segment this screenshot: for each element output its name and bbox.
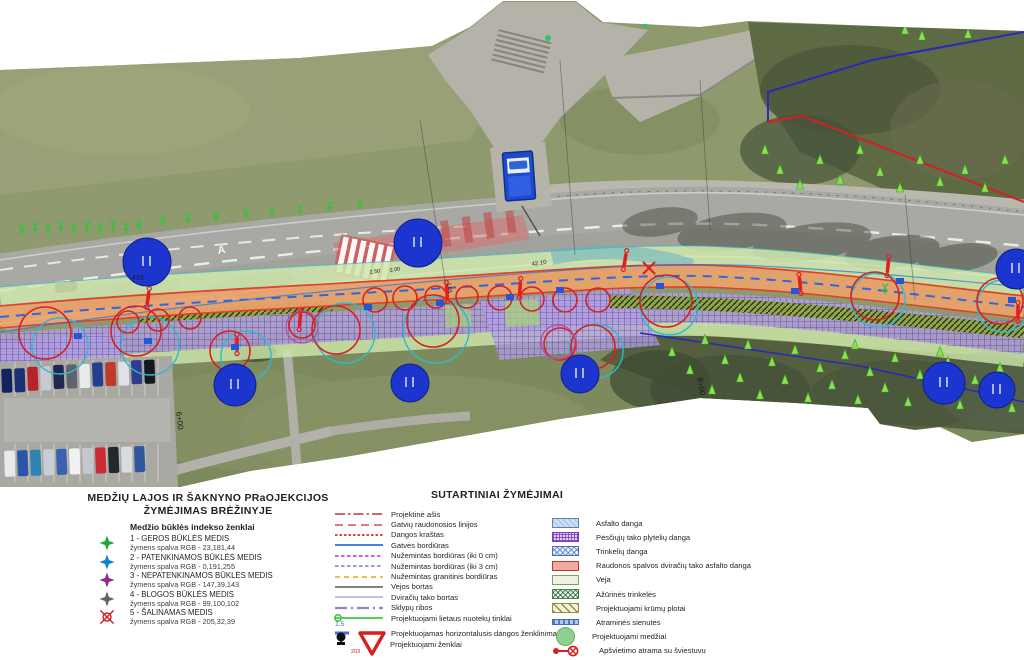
tree-legend-subtitle: Medžio būklės indekso ženklai [130,522,358,532]
line-style-sample [333,540,385,550]
surface-legend-label: Asfalto danga [596,519,642,528]
signs-legend-label: Projektuojami ženklai [390,640,462,649]
line-legend-label: Sklypų ribos [391,603,432,612]
surface-legend-label: Ažūrinės trinkelės [596,590,656,599]
line-legend-label: Nužemintas bordiūras (iki 0 cm) [391,551,498,560]
tree-condition-icon [98,554,116,570]
tree-condition-icon [98,535,116,551]
surface-legend-row: Asfalto danga [552,516,872,530]
line-style-sample [333,592,385,602]
symbols-legend-heading: SUTARTINIAI ŽYMĖJIMAI [377,489,617,501]
line-legend-label: Nužemintas granitinis bordiūras [391,572,497,581]
tree-legend-title-line2: ŽYMĖJIMAS BRĖŽINYJE [58,505,358,518]
surface-legend-label: Apšvietimo atrama su šviestuvu [599,646,706,655]
surface-legend-row: Atraminės sienutės [552,615,872,629]
surface-legend-row: Veja [552,573,872,587]
line-style-sample [333,520,385,530]
surface-swatch [552,603,579,613]
surface-swatch [552,546,579,556]
surface-swatch [552,619,579,625]
surface-legend-row: Trinkelių danga [552,544,872,558]
line-style-sample [333,582,385,592]
line-style-sample [333,551,385,561]
tree-condition-label: 2 - PATENKINAMOS BŪKLĖS MEDIS [130,553,262,562]
tree-legend-row: 4 - BLOGOS BŪKLĖS MEDIS žymens spalva RG… [98,590,358,609]
tree-condition-rgb: žymens spalva RGB - 205,32,39 [130,617,235,626]
light-pole-icon [552,645,582,657]
surface-legend-row: Ažūrinės trinkelės [552,587,872,601]
surface-legend-row: Projektuojami medžiai [552,630,872,644]
line-legend-label: Vejos bortas [391,582,433,591]
surface-swatch [552,561,579,571]
tree-legend-title-line1: MEDŽIŲ LAJOS IR ŠAKNYNO PRaOJEKCIJOS [58,492,358,505]
tree-condition-label: 4 - BLOGOS BŪKLĖS MEDIS [130,590,239,599]
surface-legend-label: Trinkelių danga [596,547,648,556]
surface-legend-row: Apšvietimo atrama su šviestuvu [552,644,872,658]
tree-condition-label: 5 - ŠALINAMAS MEDIS [130,608,235,617]
surface-legend-label: Projektuojami medžiai [592,632,666,641]
line-legend-label: Gatvių raudonosios linijos [391,520,478,529]
line-legend-label: Projektinė ašis [391,510,440,519]
tree-condition-label: 1 - GEROS BŪKLĖS MEDIS [130,534,235,543]
tree-legend-row: 1 - GEROS BŪKLĖS MEDIS žymens spalva RGB… [98,534,358,553]
surface-legend-label: Raudonos spalvos dviračių tako asfalto d… [596,561,751,570]
orthophoto-plan: A [0,0,1024,490]
line-legend-label: Nužemintas bordiūras (iki 3 cm) [391,562,498,571]
surface-swatch [552,532,579,542]
line-style-sample [333,572,385,582]
tree-condition-rgb: žymens spalva RGB - 0,191,255 [130,562,262,571]
surface-swatch [552,589,579,599]
bus-stop-sign-icon [337,633,346,646]
tree-legend-row: 3 - NEPATENKINAMOS BŪKLĖS MEDIS žymens s… [98,571,358,590]
tree-condition-icon [98,591,116,607]
tree-condition-label: 3 - NEPATENKINAMOS BŪKLĖS MEDIS [130,571,273,580]
yield-sign-icon [360,633,384,654]
tree-condition-rgb: žymens spalva RGB - 99,100,102 [130,599,239,608]
tree-condition-icon [98,609,116,625]
line-style-sample [333,509,385,519]
surface-legend-label: Veja [596,575,611,584]
surface-swatch [552,575,579,585]
tree-number-label: 415 [132,275,144,282]
tree-condition-rgb: žymens spalva RGB - 23,181,44 [130,543,235,552]
tree-legend-row: 2 - PATENKINAMOS BŪKLĖS MEDIS žymens spa… [98,553,358,572]
line-legend-label: Dangos kraštas [391,530,444,539]
surface-legend-label: Pėsčiųjų tako plytelių danga [596,533,690,542]
surface-legend-row: Raudonos spalvos dviračių tako asfalto d… [552,559,872,573]
tree-legend-row: 5 - ŠALINAMAS MEDIS žymens spalva RGB - … [98,608,358,627]
surface-legend-row: Projektuojami krūmų plotai [552,601,872,615]
line-style-sample [333,603,385,613]
surface-legend-label: Projektuojami krūmų plotai [596,604,685,613]
tree-condition-icon [98,572,116,588]
aerial-photo: A [0,0,1024,490]
line-style-sample [333,561,385,571]
tree-condition-legend: MEDŽIŲ LAJOS IR ŠAKNYNO PRaOJEKCIJOS ŽYM… [58,492,358,627]
surface-swatch [556,627,575,646]
surface-legend: Asfalto danga Pėsčiųjų tako plytelių dan… [552,516,872,658]
drawing-sheet: A [0,0,1024,660]
line-legend-label: Projektuojami lietaus nuotekų tinklai [391,614,512,623]
sign-number: 203 [351,649,360,655]
tree-legend-items: 1 - GEROS BŪKLĖS MEDIS žymens spalva RGB… [58,534,358,627]
line-legend-label: Dviračių tako bortas [391,593,458,602]
surface-legend-label: Atraminės sienutės [596,618,661,627]
line-legend-label: Gatvės bordiūras [391,541,449,550]
surface-legend-row: Pėsčiųjų tako plytelių danga [552,530,872,544]
surface-swatch [552,518,579,528]
tree-condition-rgb: žymens spalva RGB - 147,39,143 [130,580,273,589]
site-plan-map: A [0,0,1024,490]
line-style-sample [333,530,385,540]
